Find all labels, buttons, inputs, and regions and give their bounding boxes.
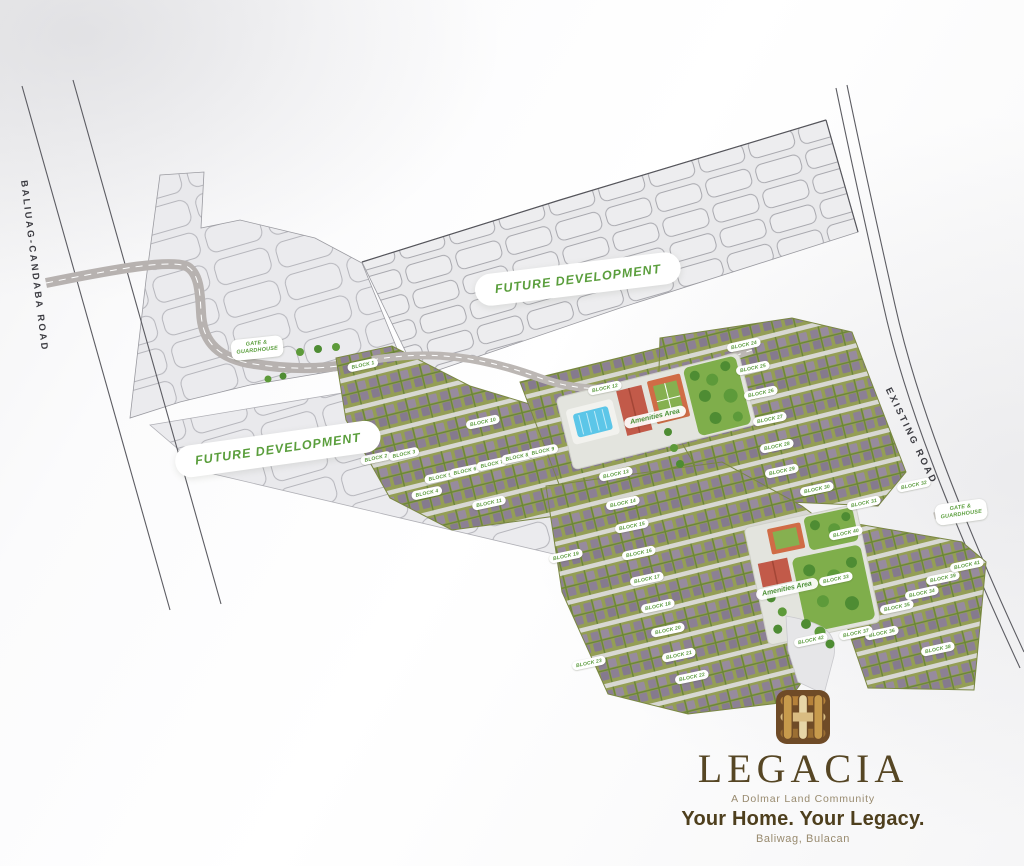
brand-name: LEGACIA — [643, 748, 963, 790]
gate2-road-stub — [934, 505, 974, 516]
brand-tagline: Your Home. Your Legacy. — [643, 808, 963, 831]
woven-square-logo-icon — [776, 690, 830, 744]
brand-community-line: A Dolmar Land Community — [643, 793, 963, 805]
brand-location: Baliwag, Bulacan — [643, 833, 963, 845]
site-development-map: BLOCK 1BLOCK 2BLOCK 3BLOCK 4BLOCK 5BLOCK… — [0, 0, 1024, 866]
